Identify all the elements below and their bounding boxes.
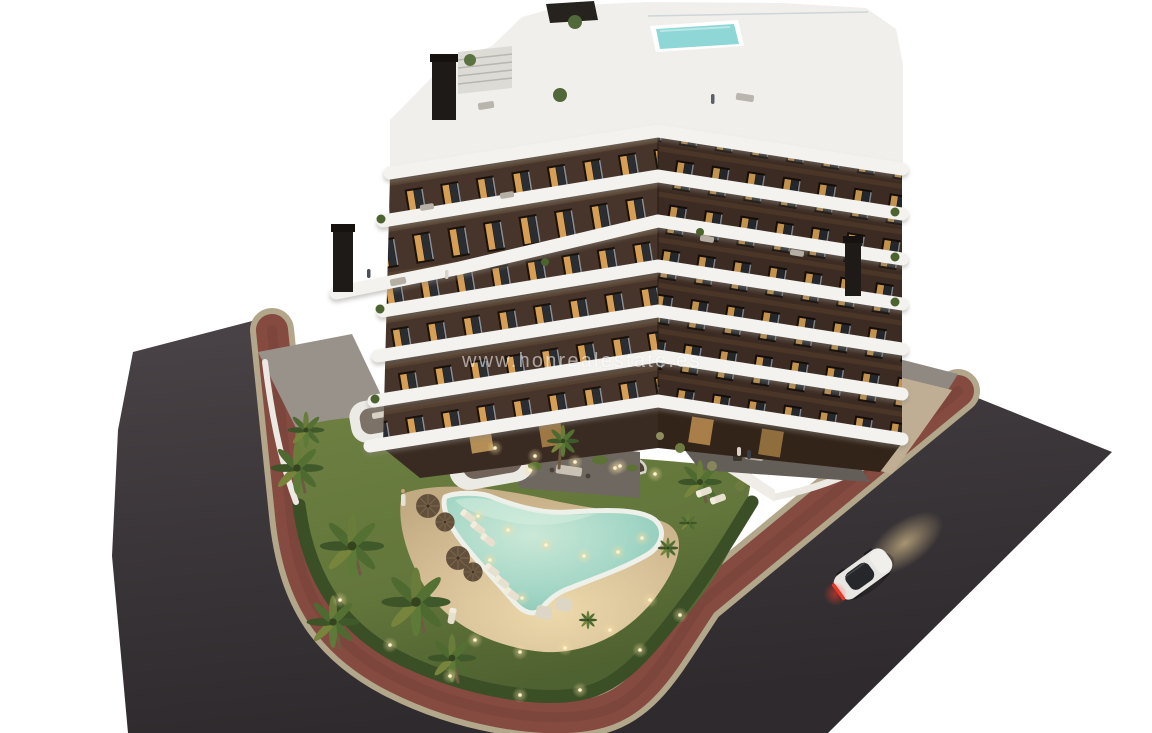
parasol bbox=[463, 562, 482, 581]
building bbox=[331, 1, 903, 478]
palm-tree bbox=[271, 442, 324, 495]
roof-chimney-cap bbox=[430, 54, 458, 62]
palm-bush bbox=[658, 538, 679, 559]
person bbox=[401, 489, 406, 506]
palm-tree bbox=[288, 412, 325, 449]
palm-bush bbox=[579, 611, 597, 629]
right-terrace-chimney-cap bbox=[843, 236, 863, 243]
person bbox=[445, 270, 449, 279]
palm-tree bbox=[320, 514, 384, 578]
parasol bbox=[435, 512, 454, 531]
roof-chimney bbox=[432, 58, 456, 120]
right-terrace-chimney bbox=[845, 240, 861, 296]
render-scene: www.honrealestate.es bbox=[0, 0, 1152, 733]
palm-tree bbox=[547, 425, 579, 457]
palm-bush bbox=[679, 514, 697, 532]
roof-stairs bbox=[458, 46, 512, 94]
person bbox=[711, 94, 715, 104]
left-terrace-chimney-cap bbox=[331, 224, 355, 232]
palm-tree bbox=[382, 568, 451, 637]
left-terrace-chimney bbox=[333, 228, 353, 292]
person bbox=[367, 269, 371, 278]
parasol bbox=[416, 494, 440, 518]
render-canvas bbox=[0, 0, 1152, 733]
